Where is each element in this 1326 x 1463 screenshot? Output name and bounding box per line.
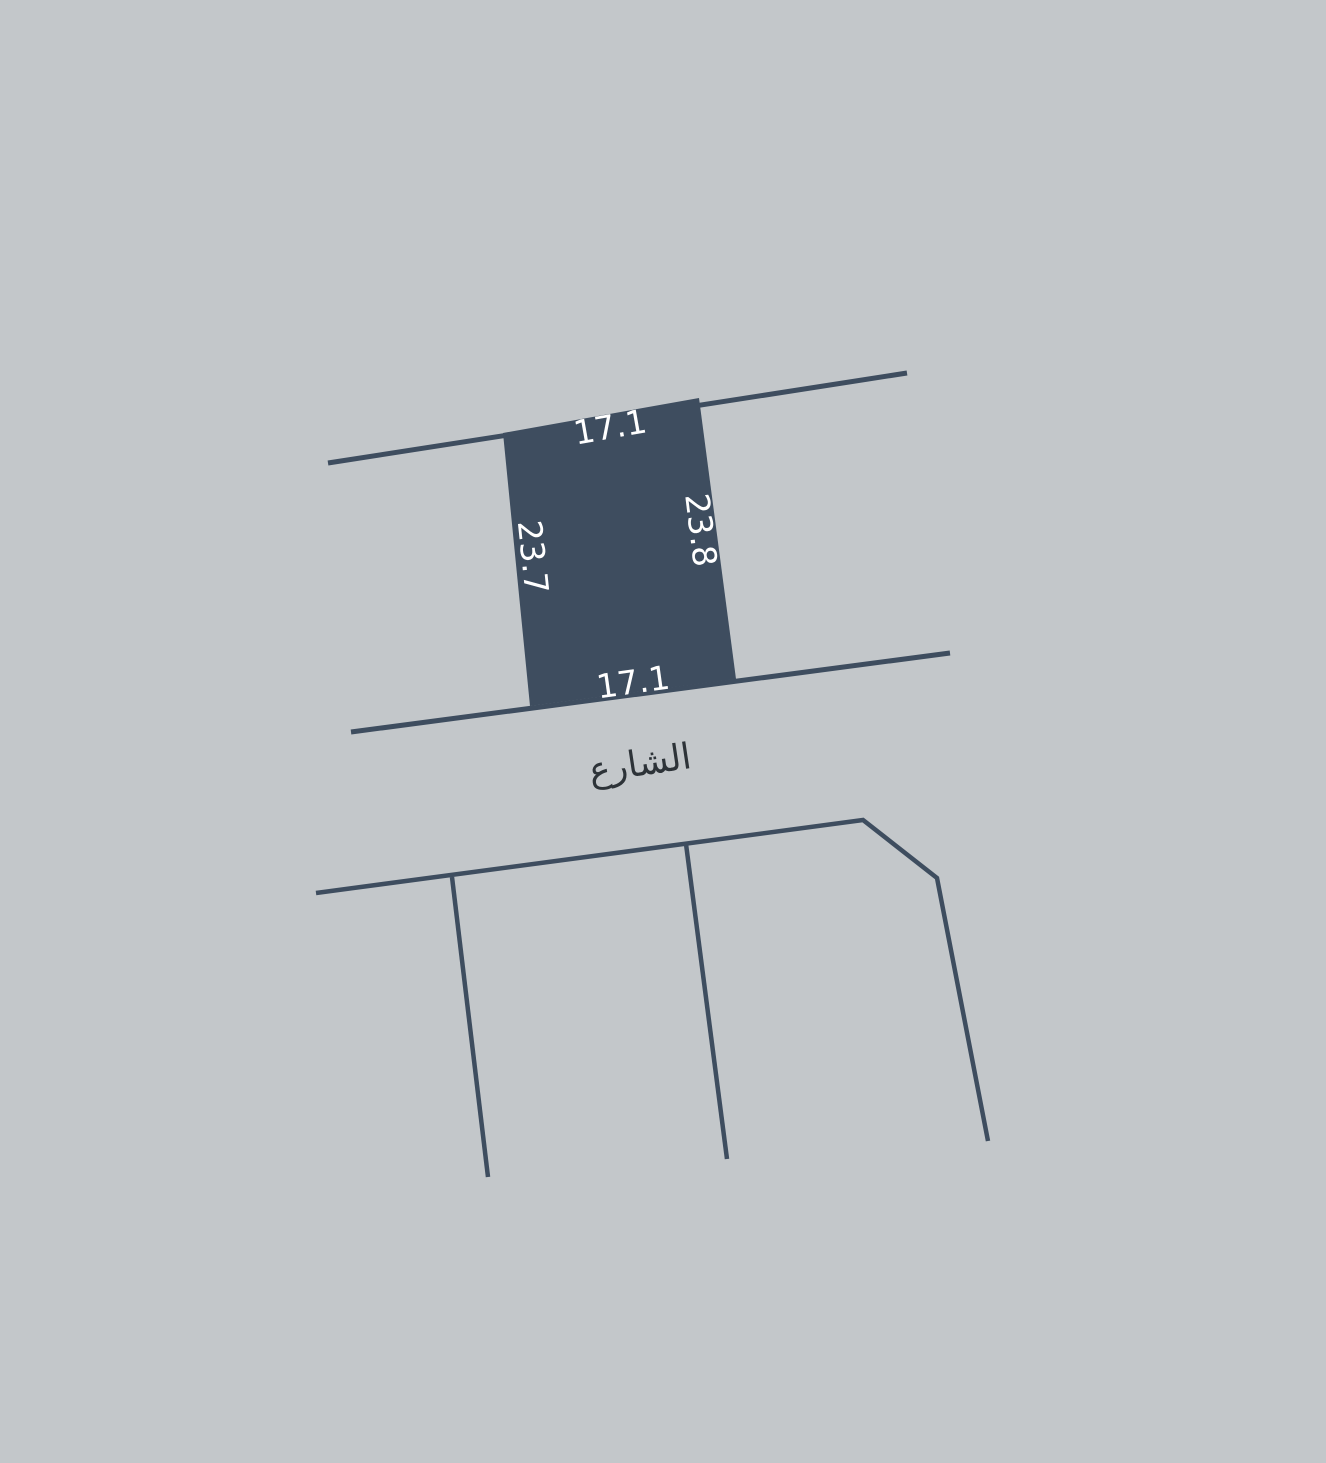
dimension-label-left: 23.7	[510, 518, 556, 595]
plot-map-canvas: 17.1 23.8 23.7 17.1 الشارع	[0, 0, 1326, 1463]
plot-map: 17.1 23.8 23.7 17.1 الشارع	[0, 0, 1326, 1463]
map-background	[0, 0, 1326, 1463]
